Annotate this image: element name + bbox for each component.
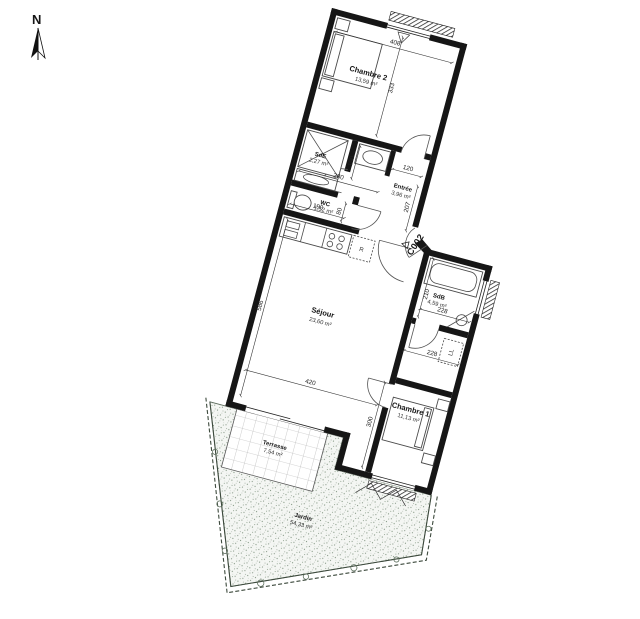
floor-plan-page: N [0, 0, 640, 619]
north-needle-fill [31, 28, 38, 58]
north-arrow: N [31, 12, 45, 60]
floor-plan-canvas: N [0, 0, 640, 619]
north-needle-outline [38, 28, 45, 58]
north-label: N [32, 12, 41, 27]
plan-rotated-group: R LL 408 333 [158, 0, 561, 619]
